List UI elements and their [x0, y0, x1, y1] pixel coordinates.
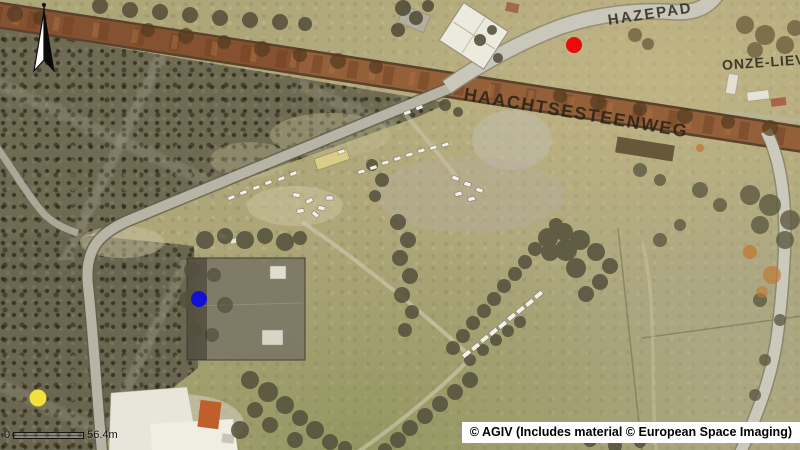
- compound-building-south: [262, 330, 283, 345]
- attribution-text: © AGIV (Includes material © European Spa…: [470, 425, 792, 439]
- scale-start-label: 0: [4, 429, 10, 441]
- compound-building-north: [270, 266, 286, 279]
- aerial-basemap: [0, 0, 800, 450]
- scale-bar-rect: [13, 432, 84, 439]
- north-arrow-icon: [31, 1, 57, 81]
- road-branch-west: [0, 146, 78, 233]
- scale-distance-label: 56.4m: [87, 429, 118, 441]
- scale-bar: 0 56.4m: [4, 429, 118, 441]
- map-viewport[interactable]: HAZEPAD HAACHTSESTEENWEG ONZE-LIEV 0 56.…: [0, 0, 800, 450]
- fenced-compound: [187, 258, 305, 360]
- barn-building: [615, 137, 675, 162]
- blue-marker[interactable]: [190, 290, 208, 308]
- red-marker[interactable]: [565, 36, 583, 54]
- yellow-marker[interactable]: [29, 389, 47, 407]
- orange-roof-building: [197, 400, 221, 429]
- attribution-box: © AGIV (Includes material © European Spa…: [462, 422, 800, 443]
